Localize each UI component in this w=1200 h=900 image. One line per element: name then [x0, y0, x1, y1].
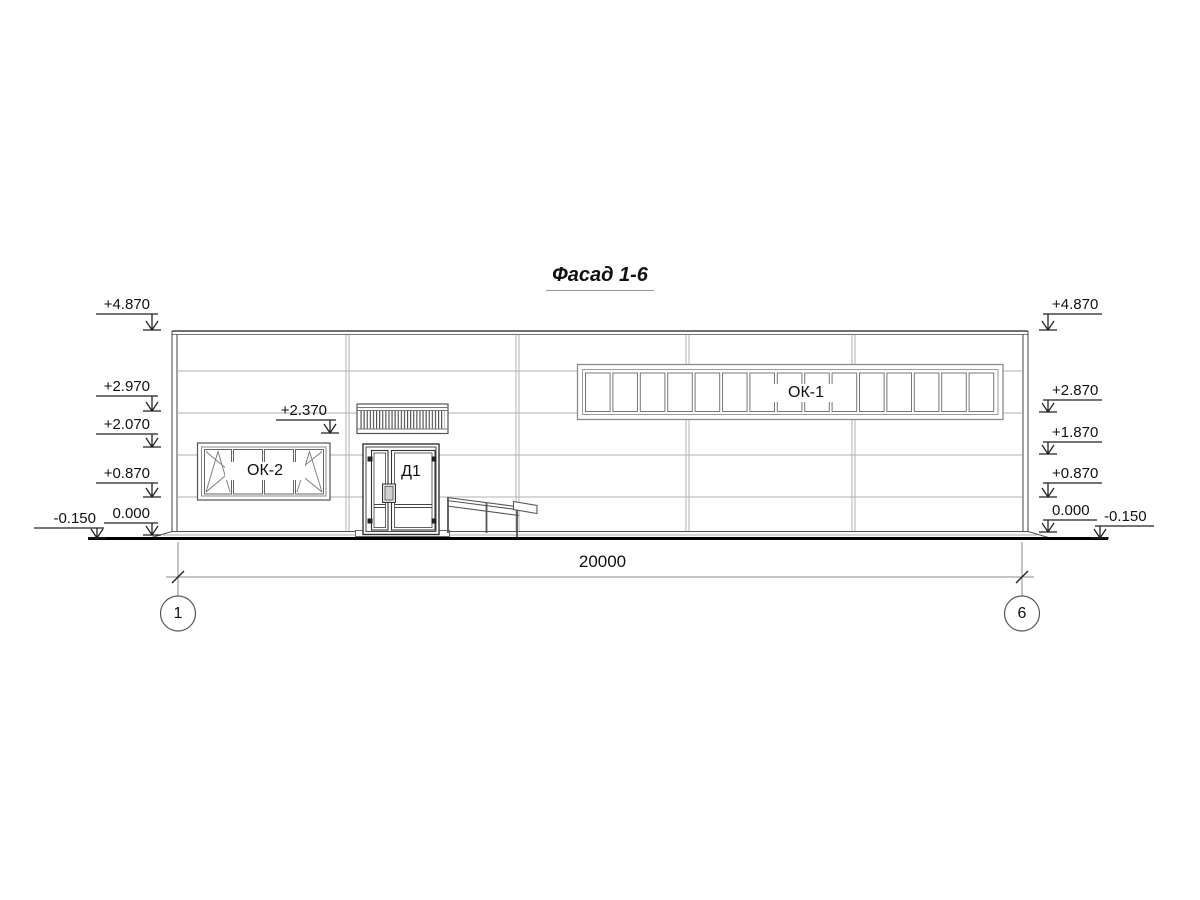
elevation-value-right: +2.870 [1052, 383, 1098, 400]
entrance-elevation-value: +2.370 [237, 403, 327, 420]
facade-drawing-sheet: Фасад 1-6 +4.870 +2.970 +2.070 +0.870 0.… [0, 0, 1200, 900]
elevation-value-right: +1.870 [1052, 425, 1098, 442]
building-outline [150, 331, 1050, 538]
axis-number-right: 6 [1004, 605, 1040, 623]
window-strip-label: ОК-1 [763, 384, 849, 402]
elevation-value-left: -0.150 [6, 511, 96, 528]
entrance-elevation-mark [276, 420, 339, 433]
elevation-value-left: +0.870 [60, 466, 150, 483]
drawing-canvas [0, 0, 1200, 900]
elevation-value-left: +4.870 [60, 297, 150, 314]
door-handle [383, 484, 396, 503]
window-label: ОК-2 [225, 462, 305, 480]
elevation-value-right: +0.870 [1052, 466, 1098, 483]
axis-number-left: 1 [160, 605, 196, 623]
vent-grille [357, 404, 448, 434]
elevation-value-right: 0.000 [1052, 503, 1090, 520]
facade-panel-joints [178, 334, 1022, 531]
axis-bubbles [161, 596, 1040, 631]
total-dimension-value: 20000 [540, 553, 665, 572]
elevation-value-right: +4.870 [1052, 297, 1098, 314]
drawing-title: Фасад 1-6 [546, 264, 654, 291]
elevation-value-left: +2.070 [60, 417, 150, 434]
elevation-value-right: -0.150 [1104, 509, 1147, 526]
entrance-door-d1 [363, 444, 439, 535]
door-label: Д1 [391, 463, 431, 481]
elevation-value-left: +2.970 [60, 379, 150, 396]
